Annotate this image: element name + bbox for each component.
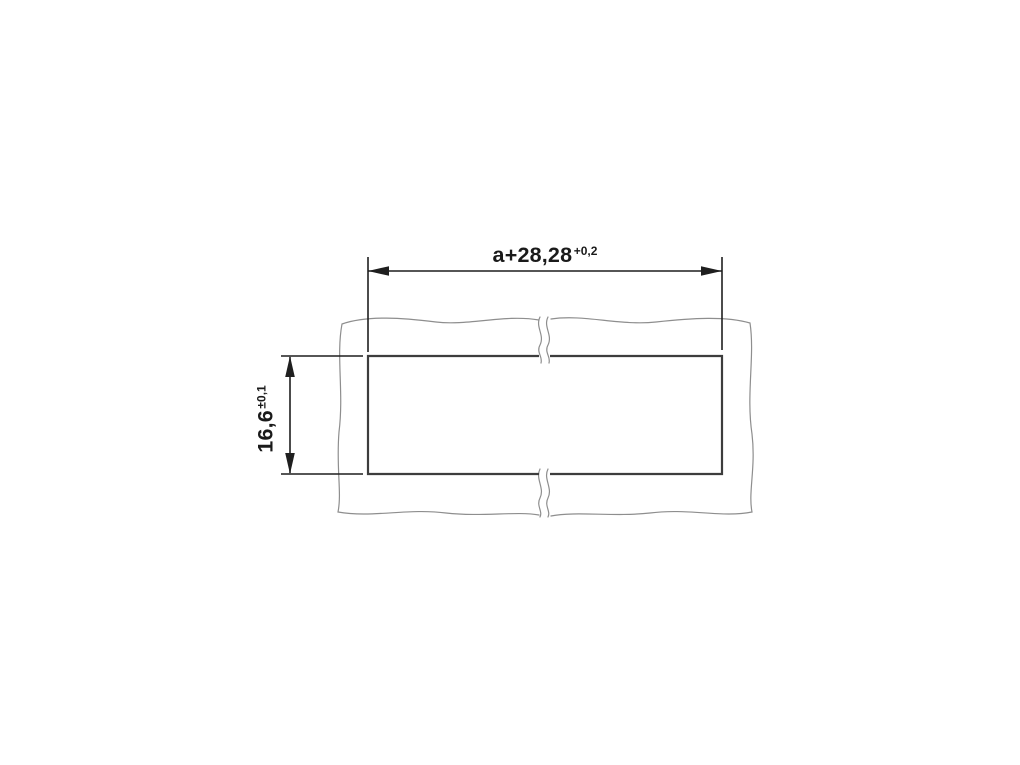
drawing-canvas <box>0 0 1020 765</box>
height-arrow-top <box>285 356 295 377</box>
cutout-outline-right <box>550 356 722 474</box>
width-dimension-tolerance: +0,2 <box>574 244 598 258</box>
cutout-outline-left <box>368 356 539 474</box>
break-mark-bottom-right <box>547 469 550 517</box>
height-dimension-value: 16,6 <box>254 410 278 453</box>
height-dimension-tolerance: ±0,1 <box>254 385 268 408</box>
width-dimension-label: a+28,28+0,2 <box>368 244 722 269</box>
break-mark-top-right <box>547 317 550 363</box>
width-dimension-value: a+28,28 <box>493 243 573 267</box>
drawing-area: a+28,28+0,2 16,6±0,1 <box>0 0 1020 765</box>
height-dimension-label: 16,6±0,1 <box>255 385 280 452</box>
height-arrow-bottom <box>285 453 295 474</box>
break-mark-bottom-left <box>539 469 542 517</box>
